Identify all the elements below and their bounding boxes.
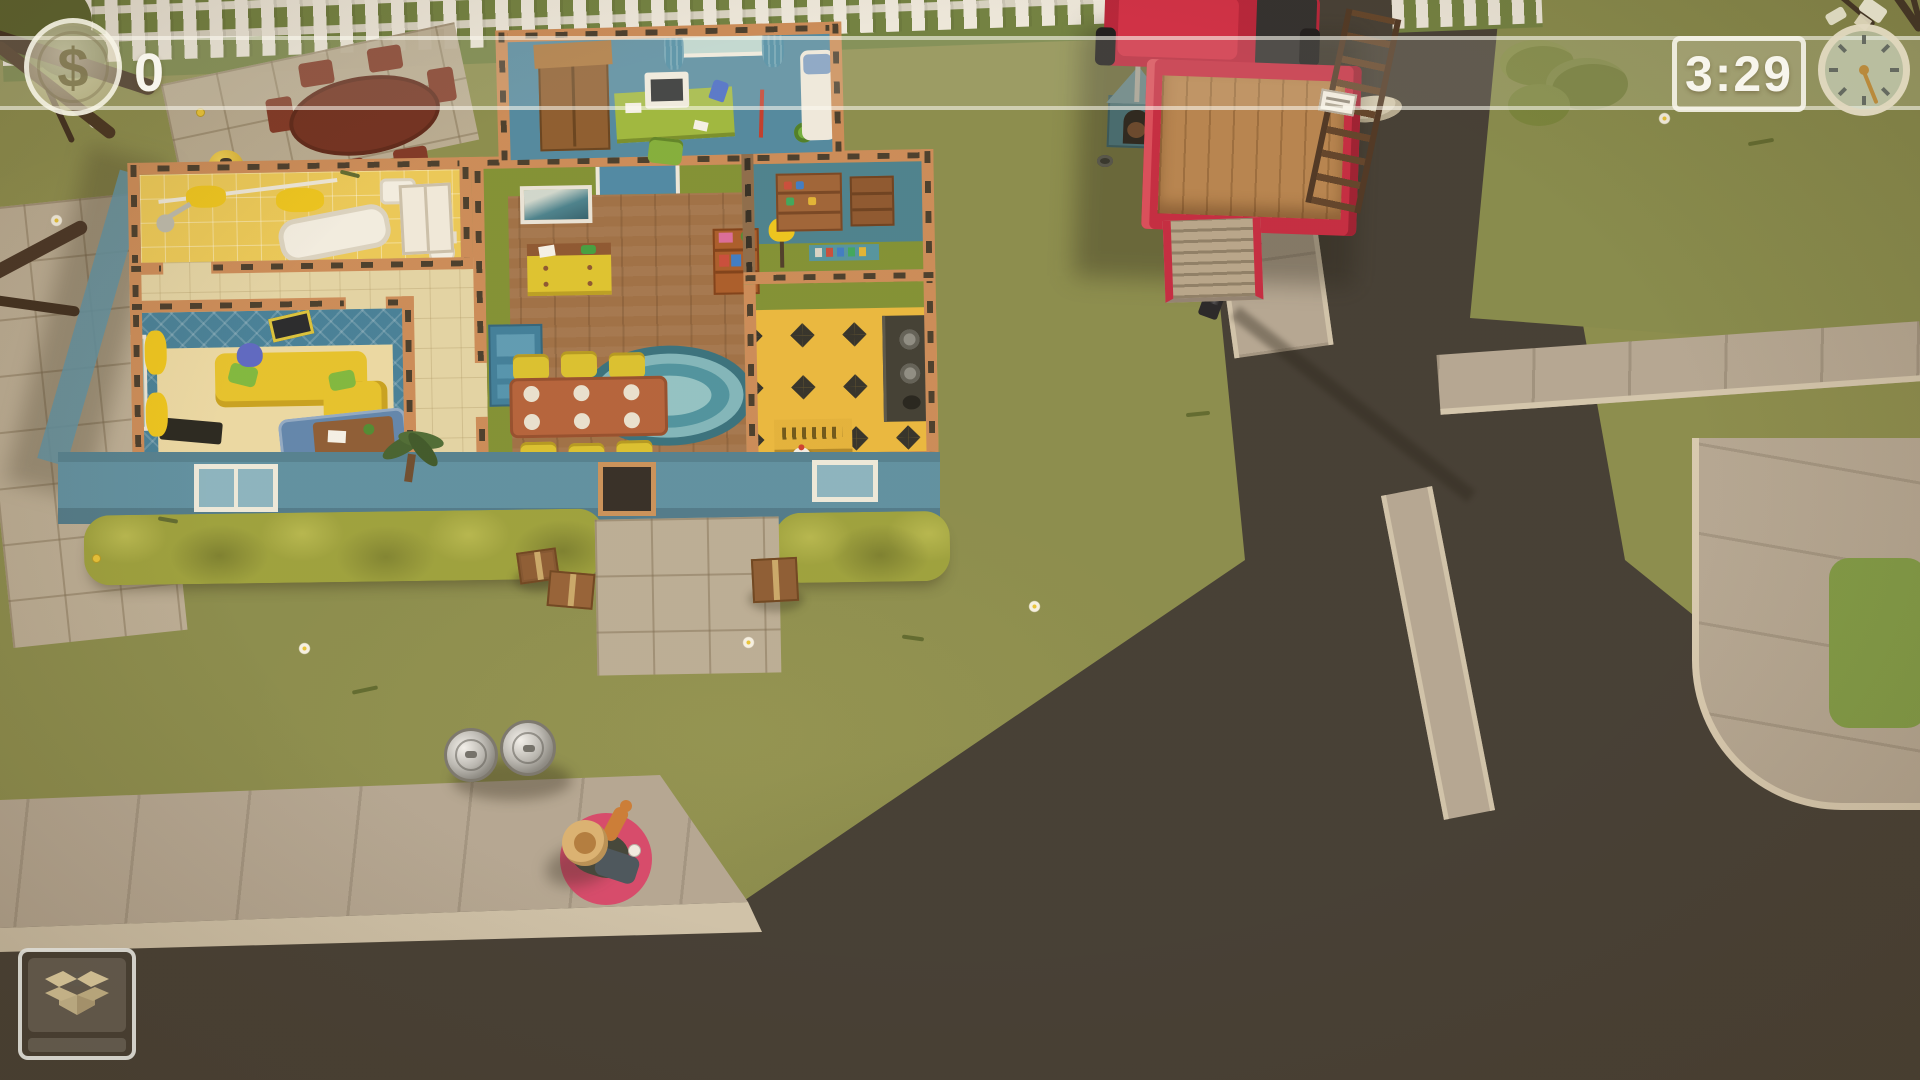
tick — [1829, 68, 1838, 72]
jar — [786, 197, 794, 205]
tick — [1881, 87, 1890, 96]
pantry-shelf[interactable] — [776, 173, 843, 232]
house[interactable] — [127, 145, 938, 477]
shower-curtain[interactable] — [276, 188, 324, 213]
jar — [808, 197, 816, 205]
window-mullion — [234, 469, 238, 507]
daisy — [50, 214, 63, 227]
stove-burner — [900, 363, 920, 383]
front-door[interactable] — [598, 462, 656, 516]
timer-box: 3:29 — [1672, 36, 1806, 112]
moving-box[interactable] — [547, 570, 596, 610]
book-pink — [719, 233, 733, 243]
picket-fence-east — [1391, 0, 1542, 33]
plate — [524, 414, 540, 430]
paper — [328, 430, 347, 443]
kitchen-wall-band — [750, 281, 936, 310]
dining-chair[interactable] — [561, 351, 597, 378]
table-lamp-blue[interactable] — [237, 343, 263, 367]
kitchen-appliance[interactable] — [774, 418, 853, 453]
grass-tuft — [902, 634, 924, 641]
character-hand — [620, 800, 632, 812]
yard-plant — [380, 424, 450, 490]
can — [826, 248, 833, 257]
dresser-knob — [587, 281, 592, 286]
dining-table[interactable] — [509, 376, 668, 439]
living-wall-band-left — [484, 168, 513, 458]
shelf-line — [778, 191, 840, 195]
trash-can[interactable] — [444, 728, 498, 782]
dining-chair[interactable] — [609, 352, 645, 379]
stopwatch-knob-small — [1824, 6, 1847, 26]
books — [719, 255, 729, 267]
pantry-counter[interactable] — [809, 244, 879, 261]
desk-plant — [363, 423, 375, 435]
jar — [784, 181, 792, 189]
hedge-east — [775, 511, 951, 583]
daisy — [298, 642, 311, 655]
tick — [1862, 96, 1866, 105]
game-viewport[interactable]: $ 0 3:29 — [0, 0, 1920, 1080]
wall-bathroom-south — [129, 262, 163, 275]
character-hat-crown — [574, 832, 596, 854]
lamp-pole — [780, 238, 785, 268]
box-inventory-panel — [18, 948, 136, 1060]
plate — [573, 385, 589, 401]
pantry-shelf-small[interactable] — [850, 176, 895, 227]
tick — [1838, 87, 1847, 96]
moving-box[interactable] — [751, 557, 799, 603]
dresser-body[interactable] — [527, 255, 612, 296]
yellow-flower — [92, 554, 101, 563]
tick — [1890, 68, 1899, 72]
currency-symbol: $ — [29, 35, 117, 100]
curtain — [145, 392, 168, 436]
money-coin-icon: $ — [24, 18, 122, 116]
closet-doors[interactable] — [399, 183, 455, 256]
plate — [624, 412, 640, 428]
plate — [574, 413, 590, 429]
dresser-knob — [543, 266, 548, 271]
tick — [1881, 44, 1890, 53]
can — [848, 247, 855, 256]
held-item — [628, 844, 641, 857]
shelf-line — [778, 211, 840, 215]
living-doorway-blue — [595, 165, 679, 194]
chicken-comb — [798, 444, 804, 450]
telephone[interactable] — [581, 245, 596, 254]
closet-door-split — [424, 187, 430, 251]
front-window — [194, 464, 278, 512]
can-handle — [523, 745, 535, 752]
can — [837, 248, 844, 257]
daisy — [1658, 112, 1671, 125]
pan — [903, 395, 921, 409]
stove-burner — [899, 329, 919, 349]
truck-ramp-shutter[interactable] — [1163, 218, 1264, 303]
grass-patch — [1829, 558, 1920, 728]
dresser-knob — [543, 282, 548, 287]
can — [815, 248, 822, 257]
can-handle — [465, 751, 477, 758]
dresser-knob — [587, 265, 592, 270]
trash-can[interactable] — [500, 720, 556, 776]
sidewalk-corner-southeast — [1692, 438, 1920, 810]
plant-trunk — [404, 454, 416, 483]
box-tape — [534, 552, 544, 581]
grass-tuft — [352, 685, 378, 694]
dining-chair[interactable] — [513, 354, 549, 381]
daisy — [1028, 600, 1041, 613]
books — [731, 254, 741, 266]
money-value: 0 — [134, 42, 164, 104]
wall-studs-open — [741, 152, 755, 274]
stopwatch-icon — [1808, 2, 1920, 120]
shelf-line — [852, 192, 892, 196]
player-character[interactable] — [540, 790, 670, 910]
plate — [523, 386, 539, 402]
box-tape — [772, 560, 780, 600]
open-cardboard-box-icon — [41, 967, 113, 1023]
vent-slots — [782, 427, 842, 440]
timer-value: 3:29 — [1685, 45, 1793, 103]
can — [859, 247, 866, 256]
curtain — [144, 330, 167, 374]
grass-tuft — [1186, 411, 1210, 417]
hud-top-band — [0, 36, 1920, 110]
tick — [1862, 35, 1866, 44]
daisy — [742, 636, 755, 649]
fence-slats — [1391, 0, 1542, 29]
stopwatch-body — [1818, 24, 1910, 116]
tick — [1838, 44, 1847, 53]
wall-painting[interactable] — [520, 185, 593, 224]
box-tape — [568, 574, 577, 606]
plate — [623, 384, 639, 400]
shower-curtain[interactable] — [186, 185, 226, 208]
box-progress-slot — [28, 1038, 126, 1052]
shelf-line — [852, 208, 892, 212]
box-slot — [28, 958, 126, 1032]
front-window — [812, 460, 878, 502]
jar — [796, 181, 804, 189]
front-wall-top-lip — [58, 452, 940, 462]
desk-chair[interactable] — [647, 136, 684, 166]
stopwatch-hand-cap — [1859, 65, 1869, 75]
